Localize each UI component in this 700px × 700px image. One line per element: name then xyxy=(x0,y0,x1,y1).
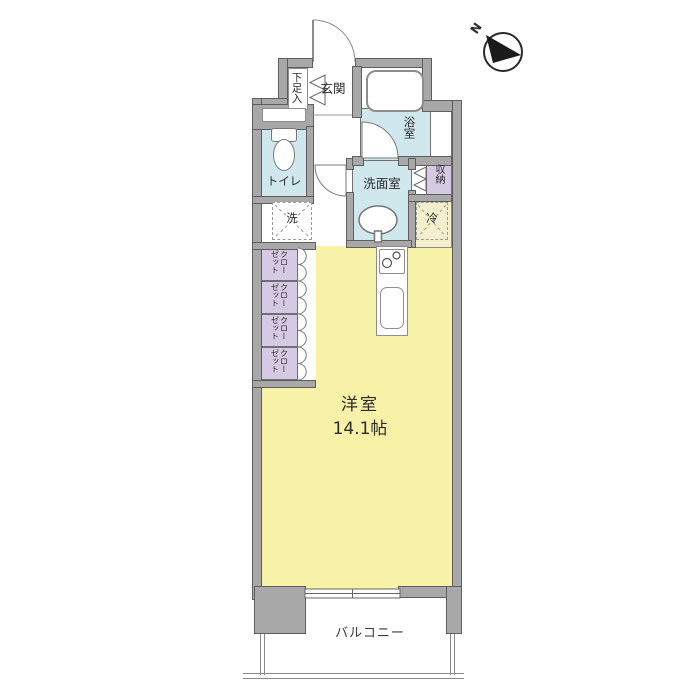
closet-label: ゼットクロー xyxy=(261,283,297,313)
bath-side-strip xyxy=(430,108,452,162)
wall-shelf xyxy=(262,108,306,122)
kitchen-sink xyxy=(380,287,404,329)
living-room-label: 洋室 xyxy=(300,396,420,416)
balcony-label: バルコニー xyxy=(310,627,430,642)
wall-balcony-left-block xyxy=(254,586,306,634)
wall-balcony-right-block xyxy=(446,586,462,634)
wall xyxy=(352,156,364,166)
shoe-box-label: 下足入 xyxy=(291,72,302,104)
fridge-label: 冷 xyxy=(420,212,444,225)
compass-north-label: N xyxy=(468,21,485,37)
closet-label: ゼットクロー xyxy=(261,349,297,379)
entrance-label: 玄関 xyxy=(312,82,354,96)
stove xyxy=(379,249,405,274)
wall xyxy=(355,58,432,68)
wall xyxy=(306,126,314,204)
washroom-floor xyxy=(352,160,412,244)
bath-room-floor xyxy=(360,108,432,162)
compass-icon xyxy=(484,33,522,71)
storage-label: 収納 xyxy=(433,164,443,184)
wall-right-outer xyxy=(452,100,462,634)
storage-bifold-door-icon xyxy=(414,167,426,191)
wall xyxy=(408,158,416,170)
closet-label: ゼットクロー xyxy=(261,250,297,280)
toilet-label: トイレ xyxy=(260,175,308,188)
closet-label: ゼットクロー xyxy=(261,316,297,346)
balcony-window-icon xyxy=(305,589,400,598)
washroom-door-swing-icon xyxy=(315,165,346,196)
bath-label: 浴室 xyxy=(403,116,415,139)
closet-door-strip xyxy=(298,246,316,382)
bathtub xyxy=(366,70,424,112)
floor-plan-canvas: 下足入 玄関 浴室 洗面室 収納 トイレ 洗 冷 ゼットクロー ゼットクロー ゼ… xyxy=(0,0,700,700)
wall xyxy=(252,242,316,250)
washer-label: 洗 xyxy=(276,212,308,225)
wall xyxy=(408,194,452,202)
entrance-door-swing-icon xyxy=(313,20,355,62)
toilet-bowl xyxy=(273,139,295,171)
living-room-size: 14.1帖 xyxy=(300,420,420,440)
washroom-label: 洗面室 xyxy=(352,177,412,191)
wall xyxy=(252,380,316,388)
